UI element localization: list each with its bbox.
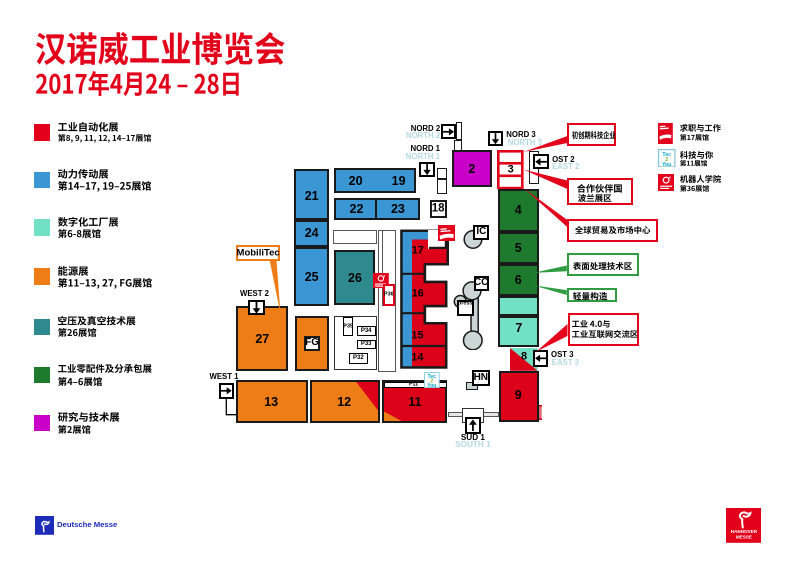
svg-text:You: You [662, 162, 671, 168]
svg-text:MESSE: MESSE [735, 535, 751, 540]
svg-text:HANNOVER: HANNOVER [730, 529, 757, 534]
